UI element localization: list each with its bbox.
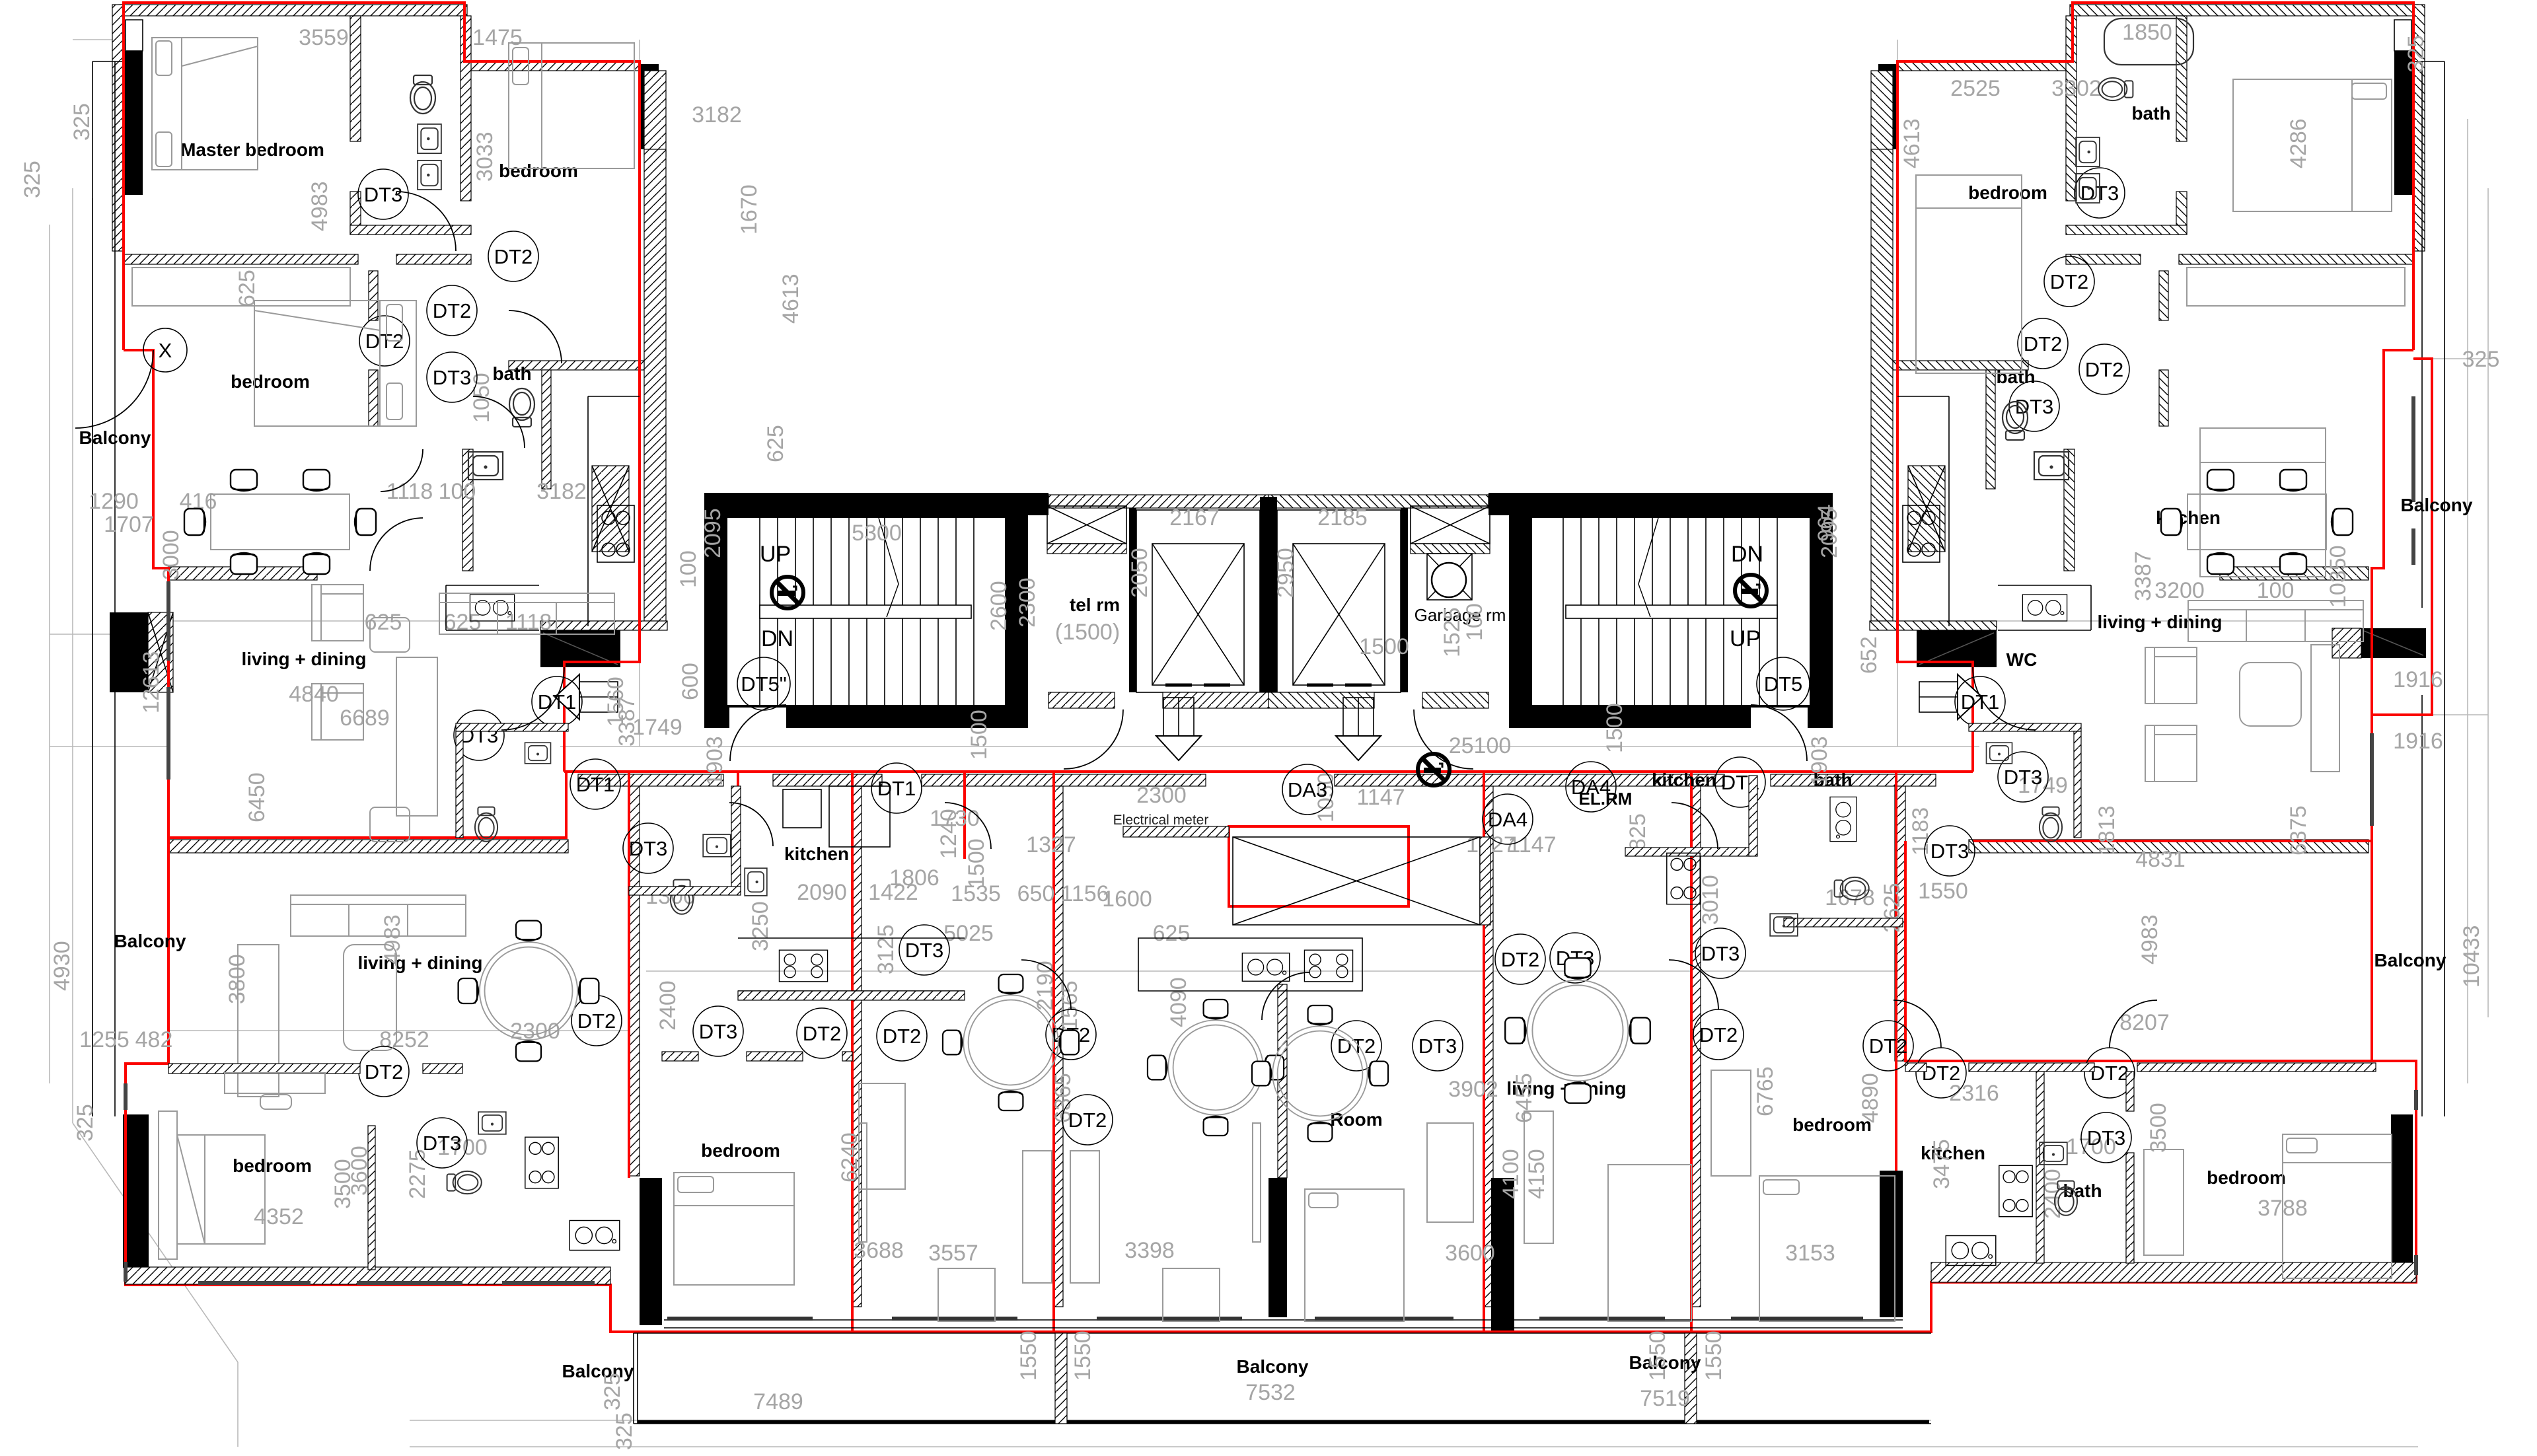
svg-text:4983: 4983 — [2137, 914, 2162, 965]
svg-text:DT3: DT3 — [423, 1132, 462, 1155]
svg-text:1550: 1550 — [1645, 1330, 1670, 1381]
svg-text:2600: 2600 — [986, 581, 1011, 631]
svg-text:10433: 10433 — [2459, 925, 2484, 988]
svg-text:325: 325 — [612, 1412, 637, 1450]
svg-text:2525: 2525 — [1950, 76, 2001, 101]
svg-text:10350: 10350 — [2326, 545, 2351, 608]
svg-text:1290: 1290 — [89, 489, 139, 514]
svg-text:DT3: DT3 — [2087, 1126, 2126, 1149]
svg-text:4090: 4090 — [1166, 977, 1191, 1027]
svg-text:4613: 4613 — [1899, 118, 1925, 168]
svg-text:1916: 1916 — [2393, 667, 2443, 692]
svg-text:600: 600 — [678, 663, 703, 700]
svg-text:DT3: DT3 — [699, 1020, 738, 1043]
svg-text:DT2: DT2 — [2050, 270, 2089, 293]
svg-text:3200: 3200 — [2154, 578, 2205, 603]
svg-text:DT1: DT1 — [576, 773, 615, 796]
svg-text:1500: 1500 — [964, 838, 989, 889]
svg-text:Balcony: Balcony — [2374, 950, 2446, 970]
svg-text:1050: 1050 — [469, 373, 494, 423]
svg-text:DN: DN — [761, 626, 793, 651]
svg-text:7489: 7489 — [753, 1389, 803, 1414]
svg-text:625: 625 — [763, 425, 788, 462]
svg-text:2300: 2300 — [1136, 783, 1187, 808]
svg-text:DT1: DT1 — [538, 690, 577, 713]
svg-text:100: 100 — [676, 550, 701, 588]
svg-text:DT2: DT2 — [1068, 1109, 1107, 1132]
svg-text:8252: 8252 — [379, 1027, 429, 1052]
svg-text:DT2: DT2 — [1869, 1035, 1908, 1058]
svg-text:DT3: DT3 — [1418, 1035, 1457, 1058]
svg-text:living + dining: living + dining — [2098, 612, 2223, 632]
svg-text:3302: 3302 — [2051, 76, 2102, 101]
svg-text:Master bedroom: Master bedroom — [180, 139, 324, 160]
svg-text:DN: DN — [1731, 542, 1763, 567]
svg-text:325: 325 — [20, 161, 45, 198]
svg-text:bedroom: bedroom — [2207, 1167, 2286, 1188]
svg-text:bedroom: bedroom — [233, 1155, 312, 1176]
svg-text:650: 650 — [1017, 881, 1055, 906]
svg-text:living + dining: living + dining — [242, 649, 367, 669]
svg-text:1903: 1903 — [702, 736, 727, 786]
svg-text:DT2: DT2 — [883, 1025, 922, 1048]
svg-text:1850: 1850 — [2122, 20, 2172, 45]
svg-text:3182: 3182 — [536, 479, 587, 504]
svg-text:4100: 4100 — [1498, 1149, 1524, 1199]
svg-text:1707: 1707 — [104, 512, 154, 537]
svg-text:1600: 1600 — [1102, 887, 1152, 912]
svg-text:UP: UP — [760, 542, 791, 567]
svg-text:325: 325 — [73, 1104, 98, 1142]
svg-text:1327: 1327 — [1026, 832, 1076, 857]
svg-text:4890: 4890 — [1858, 1073, 1883, 1123]
svg-text:325: 325 — [69, 103, 94, 141]
svg-text:Balcony: Balcony — [1237, 1356, 1309, 1377]
svg-text:1422: 1422 — [868, 880, 918, 905]
svg-text:3182: 3182 — [692, 102, 742, 127]
svg-text:3000: 3000 — [159, 530, 184, 580]
svg-text:DT5: DT5 — [1764, 673, 1803, 696]
svg-text:DT2: DT2 — [1922, 1062, 1961, 1085]
svg-text:25100: 25100 — [1449, 733, 1512, 758]
svg-text:825: 825 — [1625, 813, 1650, 851]
svg-text:3475: 3475 — [1929, 1139, 1954, 1189]
svg-text:Electrical meter: Electrical meter — [1113, 813, 1209, 828]
svg-text:1903: 1903 — [1807, 736, 1832, 786]
svg-text:bath: bath — [1996, 367, 2035, 387]
svg-text:325: 325 — [600, 1373, 625, 1410]
svg-text:1118: 1118 — [386, 479, 433, 504]
svg-text:4286: 4286 — [2286, 118, 2311, 168]
svg-text:DT2: DT2 — [433, 299, 472, 322]
svg-text:DT3: DT3 — [2004, 766, 2043, 789]
svg-text:100: 100 — [439, 479, 476, 504]
svg-text:bath: bath — [2063, 1181, 2102, 1201]
svg-text:4983: 4983 — [380, 914, 405, 965]
svg-text:100: 100 — [2257, 578, 2295, 603]
svg-text:3250: 3250 — [748, 901, 773, 951]
svg-text:WC: WC — [2006, 649, 2038, 670]
svg-text:325: 325 — [2404, 35, 2429, 73]
svg-text:2050: 2050 — [1127, 548, 1152, 598]
svg-text:1550: 1550 — [1918, 879, 1968, 904]
svg-text:6375: 6375 — [2286, 805, 2311, 855]
svg-text:3557: 3557 — [928, 1241, 978, 1266]
svg-text:1475: 1475 — [472, 25, 523, 50]
svg-text:12613: 12613 — [139, 651, 164, 713]
svg-text:DT2: DT2 — [577, 1009, 616, 1033]
svg-text:DT2: DT2 — [494, 245, 533, 268]
svg-text:DT3: DT3 — [905, 939, 944, 962]
svg-text:bedroom: bedroom — [1968, 182, 2047, 203]
svg-text:625: 625 — [444, 610, 482, 635]
svg-text:2090: 2090 — [797, 880, 847, 905]
svg-text:bedroom: bedroom — [499, 161, 578, 181]
svg-text:3125: 3125 — [873, 924, 899, 974]
svg-text:2950: 2950 — [1273, 548, 1298, 598]
svg-text:7532: 7532 — [1245, 1380, 1296, 1405]
svg-text:8207: 8207 — [2119, 1010, 2170, 1035]
svg-text:4613: 4613 — [778, 273, 803, 324]
svg-text:DT2: DT2 — [1501, 948, 1540, 971]
svg-text:3600: 3600 — [1445, 1241, 1495, 1266]
svg-text:DT3: DT3 — [433, 366, 472, 389]
svg-text:1183: 1183 — [1908, 807, 1933, 855]
svg-text:UP: UP — [1730, 626, 1761, 651]
svg-text:6450: 6450 — [244, 772, 270, 822]
svg-text:DT1: DT1 — [877, 777, 916, 800]
svg-text:3010: 3010 — [1698, 875, 1723, 925]
svg-text:2275: 2275 — [405, 1149, 430, 1199]
svg-text:625: 625 — [235, 270, 260, 307]
svg-text:3559: 3559 — [299, 25, 349, 50]
svg-text:tel rm: tel rm — [1070, 595, 1120, 615]
svg-text:1550: 1550 — [1070, 1330, 1095, 1381]
svg-text:3500: 3500 — [2146, 1103, 2171, 1153]
svg-text:2185: 2185 — [1317, 505, 1368, 530]
svg-text:2167: 2167 — [1169, 505, 1220, 530]
svg-text:bath: bath — [2131, 103, 2170, 124]
svg-text:2400: 2400 — [655, 980, 680, 1031]
svg-text:DA4: DA4 — [1571, 776, 1611, 799]
svg-text:6689: 6689 — [340, 706, 390, 731]
svg-text:DT2: DT2 — [2085, 358, 2124, 381]
svg-text:1500: 1500 — [1602, 703, 1627, 753]
svg-text:3902: 3902 — [1448, 1077, 1498, 1102]
svg-text:DT2: DT2 — [2024, 332, 2063, 355]
svg-text:1560: 1560 — [603, 676, 628, 727]
svg-text:625: 625 — [1153, 921, 1191, 946]
svg-text:living + dining: living + dining — [358, 953, 483, 973]
svg-text:2300: 2300 — [1015, 577, 1040, 628]
svg-text:4150: 4150 — [1524, 1149, 1549, 1199]
svg-text:1500: 1500 — [1359, 634, 1409, 659]
svg-text:DT3: DT3 — [2015, 395, 2054, 418]
svg-text:3033: 3033 — [472, 131, 497, 182]
svg-text:bedroom: bedroom — [231, 371, 310, 392]
svg-text:4840: 4840 — [289, 682, 339, 707]
svg-text:X: X — [159, 339, 172, 362]
svg-text:7519: 7519 — [1640, 1386, 1690, 1411]
svg-text:3398: 3398 — [1124, 1238, 1175, 1263]
svg-text:2095: 2095 — [700, 508, 725, 558]
svg-text:DA3: DA3 — [1288, 778, 1327, 801]
svg-text:4352: 4352 — [254, 1204, 304, 1229]
svg-text:325: 325 — [2462, 347, 2500, 372]
svg-text:DT3: DT3 — [1930, 840, 1969, 863]
svg-text:1255: 1255 — [79, 1027, 129, 1052]
svg-text:kitchen: kitchen — [1652, 770, 1716, 790]
svg-text:1670: 1670 — [737, 184, 762, 235]
svg-text:1118: 1118 — [505, 610, 552, 635]
svg-text:Balcony: Balcony — [114, 931, 186, 951]
svg-text:1525: 1525 — [1440, 607, 1465, 657]
svg-text:DT3: DT3 — [1701, 942, 1740, 965]
svg-text:5025: 5025 — [943, 921, 994, 946]
svg-text:4831: 4831 — [2135, 847, 2186, 872]
svg-text:bath: bath — [492, 363, 531, 384]
svg-text:DT5": DT5" — [741, 673, 787, 696]
svg-text:bedroom: bedroom — [701, 1140, 780, 1161]
svg-text:1500: 1500 — [967, 710, 992, 760]
svg-text:652: 652 — [1857, 636, 1882, 674]
svg-text:1550: 1550 — [1016, 1330, 1041, 1381]
svg-text:6765: 6765 — [1753, 1066, 1778, 1116]
svg-text:5300: 5300 — [852, 521, 902, 546]
svg-text:1749: 1749 — [632, 715, 682, 740]
svg-text:DT2: DT2 — [803, 1022, 842, 1045]
svg-text:1147: 1147 — [1356, 785, 1405, 810]
svg-text:964: 964 — [1814, 504, 1839, 542]
svg-text:4983: 4983 — [307, 181, 332, 231]
svg-text:DT2: DT2 — [2090, 1062, 2129, 1085]
svg-text:3387: 3387 — [2131, 551, 2156, 601]
svg-text:4930: 4930 — [50, 941, 75, 991]
svg-text:100: 100 — [1462, 603, 1487, 641]
svg-text:DT1: DT1 — [1961, 690, 2000, 713]
svg-text:3153: 3153 — [1785, 1241, 1835, 1266]
svg-text:1240: 1240 — [936, 809, 961, 859]
svg-text:DT2: DT2 — [365, 1060, 404, 1083]
svg-text:(1500): (1500) — [1055, 620, 1120, 645]
svg-text:Balcony: Balcony — [2401, 495, 2473, 515]
svg-text:1916: 1916 — [2393, 729, 2443, 754]
svg-text:DA4: DA4 — [1488, 808, 1527, 831]
svg-text:1678: 1678 — [1825, 885, 1875, 910]
svg-text:Balcony: Balcony — [79, 427, 151, 448]
svg-text:DT2: DT2 — [1699, 1023, 1738, 1046]
svg-text:1550: 1550 — [1701, 1330, 1726, 1381]
svg-text:1147: 1147 — [1508, 832, 1556, 857]
svg-text:DT3: DT3 — [629, 837, 668, 860]
svg-text:1813: 1813 — [2094, 805, 2119, 855]
svg-text:482: 482 — [135, 1027, 173, 1052]
